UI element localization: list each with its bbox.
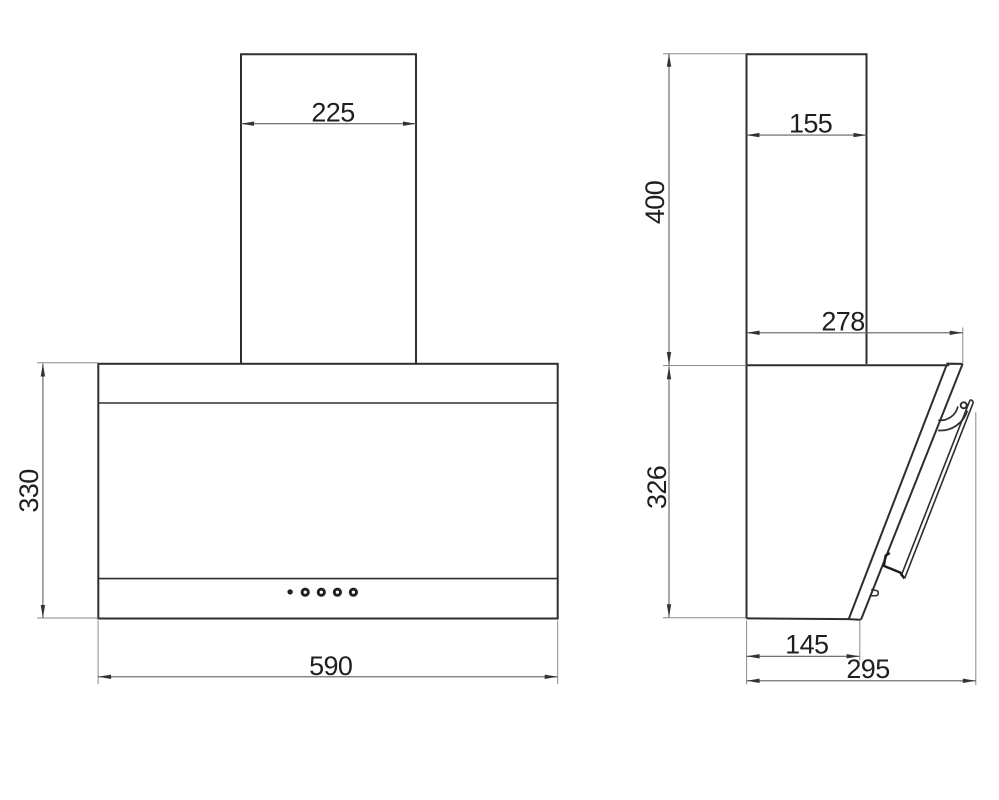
svg-text:278: 278 <box>821 306 864 336</box>
svg-text:400: 400 <box>640 181 670 224</box>
svg-text:590: 590 <box>309 651 352 681</box>
svg-text:225: 225 <box>311 98 354 128</box>
svg-text:295: 295 <box>846 654 889 684</box>
svg-text:330: 330 <box>14 469 44 512</box>
svg-text:145: 145 <box>785 629 828 659</box>
svg-text:326: 326 <box>642 466 672 509</box>
svg-text:155: 155 <box>789 109 832 139</box>
